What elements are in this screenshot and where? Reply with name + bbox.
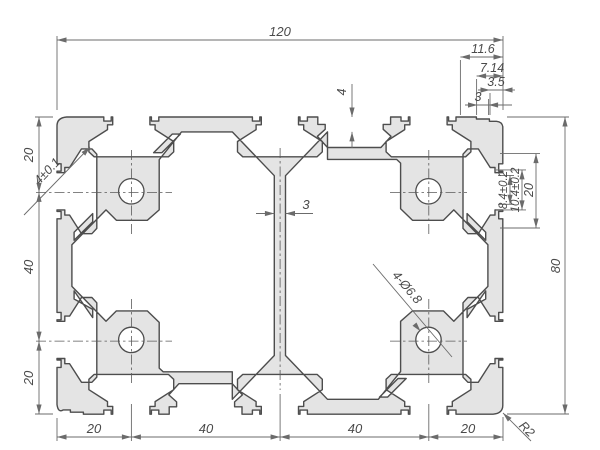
dim-bottom-40-left: 40 (199, 421, 214, 436)
arrowhead (562, 117, 567, 127)
arrowhead (36, 405, 41, 415)
technical-drawing-canvas: 120 11.6 7.14 3.5 3 20 40 20 4±0.1 4 3 4… (0, 0, 600, 450)
arrowhead (36, 332, 41, 342)
arrowhead (36, 341, 41, 351)
dim-corner-3: 3 (475, 90, 482, 104)
arrowhead (280, 434, 290, 439)
dim-corner-7-14: 7.14 (480, 61, 504, 75)
dim-holes-callout: 4-Ø6.8 (389, 268, 424, 306)
arrowhead (349, 108, 354, 118)
dim-slot-outer: 20 (522, 183, 536, 198)
arrowhead (533, 219, 538, 229)
dim-overall-width: 120 (269, 24, 291, 39)
profile-drawing: 120 11.6 7.14 3.5 3 20 40 20 4±0.1 4 3 4… (0, 0, 600, 450)
dim-slot-inner: 10.4±0.2 (510, 167, 522, 212)
arrowhead (460, 54, 470, 59)
arrowhead (131, 434, 141, 439)
arrowhead (494, 37, 504, 42)
dim-bottom-20-left: 20 (86, 421, 102, 436)
arrowhead (57, 434, 67, 439)
dim-wall-thickness: 4 (335, 88, 349, 95)
arrowhead (36, 117, 41, 127)
arrowhead (349, 132, 354, 142)
arrowhead (419, 434, 429, 439)
dim-slot-opening: 8.4±0.2 (498, 170, 510, 209)
dim-overall-height: 80 (548, 258, 563, 273)
dim-corner-radius: R2 (516, 419, 537, 440)
arrowhead (494, 54, 504, 59)
dim-left-20-bottom: 20 (21, 370, 36, 386)
dim-corner-11-6: 11.6 (471, 42, 494, 56)
arrowhead (562, 405, 567, 415)
arrowhead (494, 434, 504, 439)
arrowhead (122, 434, 132, 439)
dim-web-thickness: 3 (302, 197, 310, 212)
arrowhead (265, 211, 275, 216)
dim-left-40: 40 (21, 259, 36, 274)
arrowhead (429, 434, 439, 439)
arrowhead (533, 154, 538, 164)
dim-left-20-top: 20 (21, 147, 36, 163)
arrowhead (286, 211, 296, 216)
dim-bottom-40-right: 40 (348, 421, 363, 436)
arrowhead (57, 37, 67, 42)
arrowhead (271, 434, 281, 439)
dim-bottom-20-right: 20 (460, 421, 476, 436)
dim-corner-3-5: 3.5 (487, 75, 504, 89)
